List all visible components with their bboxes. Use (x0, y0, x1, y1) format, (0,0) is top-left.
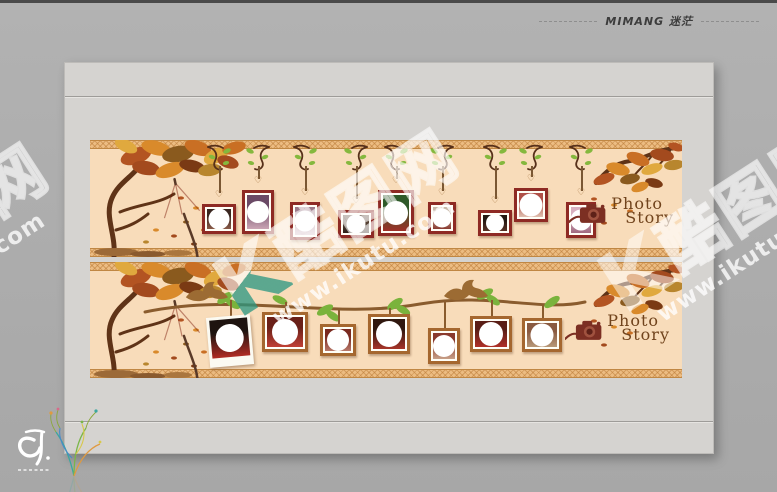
photo-story-text: Photo Story (611, 197, 674, 225)
brand-header: MIMANG 迷茫 (539, 13, 759, 29)
heart-hanger-icon: ♡ (577, 189, 585, 197)
wedding-photo (325, 329, 351, 351)
face-privacy-circle (479, 322, 503, 346)
photo-frame (478, 210, 512, 236)
photo-story-line2: Story (621, 328, 670, 342)
heart-hanger-icon: ♡ (491, 197, 499, 205)
watermark-site-name: 酷图网 (0, 136, 60, 301)
face-privacy-circle (376, 321, 402, 347)
artboard: ♡ ♡ ♡ (64, 62, 714, 454)
wedding-photo (483, 215, 507, 231)
photo-frame (470, 316, 512, 352)
heart-hanger-icon: ♡ (392, 177, 400, 185)
face-privacy-circle (272, 319, 298, 345)
brand-dash-right (701, 21, 759, 22)
photo-frame (242, 190, 274, 234)
face-privacy-circle (433, 209, 451, 228)
photo-frame (378, 190, 414, 236)
wedding-photo (207, 209, 231, 229)
wedding-photo (433, 207, 451, 229)
camera-icon (569, 199, 609, 225)
photo-frame (290, 202, 320, 240)
polaroid-photo (206, 314, 254, 368)
wedding-photo (383, 195, 409, 231)
heart-hanger-icon: ♡ (301, 189, 309, 197)
banner-design-bottom: Photo Story (90, 262, 682, 378)
photo-frame (262, 312, 308, 352)
wedding-photo (527, 323, 557, 347)
photo-frame (338, 210, 374, 238)
wedding-photo (295, 207, 315, 235)
photo-frame (320, 324, 356, 356)
artboard-divider-bottom-highlight (65, 422, 713, 423)
face-privacy-circle (209, 209, 230, 229)
brand-dash-left (539, 21, 597, 22)
heart-hanger-icon: ♡ (352, 197, 360, 205)
banner-design-top: ♡ ♡ ♡ (90, 140, 682, 257)
face-privacy-circle (486, 215, 504, 231)
photo-frame (428, 328, 460, 364)
artboard-divider-top-highlight (65, 97, 713, 98)
hanging-stick (444, 302, 446, 331)
face-privacy-circle (531, 324, 554, 347)
hanging-string (495, 166, 497, 199)
camera-icon (565, 316, 605, 342)
artist-signature-logo (4, 388, 124, 492)
photo-story-line2: Story (625, 211, 674, 225)
photo-frame (368, 314, 410, 354)
calligraphy-mark (18, 431, 50, 471)
photo-story-text: Photo Story (607, 314, 670, 342)
wedding-photo (519, 193, 543, 217)
face-privacy-circle (327, 329, 349, 351)
photo-frame (202, 204, 236, 234)
face-privacy-circle (347, 215, 366, 233)
face-privacy-circle (384, 201, 408, 225)
face-privacy-circle (520, 194, 543, 217)
heart-hanger-icon: ♡ (438, 189, 446, 197)
heart-hanger-icon: ♡ (215, 191, 223, 199)
wedding-photo (267, 317, 303, 347)
top-border-rule (0, 0, 777, 3)
photo-story-title: Photo Story (569, 197, 674, 225)
face-privacy-circle (215, 323, 245, 353)
design-proof-canvas: MIMANG 迷茫 ♡ (0, 0, 777, 492)
photo-frame (514, 188, 548, 222)
face-privacy-circle (247, 201, 269, 223)
heart-hanger-icon: ♡ (527, 175, 535, 183)
hanging-string (356, 166, 358, 199)
photo-frame (428, 202, 456, 234)
wedding-photo (373, 319, 405, 349)
wedding-photo (475, 321, 507, 347)
wedding-photo (247, 195, 269, 229)
wedding-photo (433, 333, 455, 359)
hanging-string (219, 166, 221, 193)
wedding-photo (343, 215, 369, 233)
face-privacy-circle (295, 211, 315, 232)
face-privacy-circle (433, 335, 455, 357)
heart-hanger-icon: ♡ (254, 177, 262, 185)
photo-story-title: Photo Story (565, 314, 670, 342)
wedding-photo (209, 317, 250, 358)
photo-frame (522, 318, 562, 352)
brand-name: MIMANG 迷茫 (605, 13, 693, 29)
